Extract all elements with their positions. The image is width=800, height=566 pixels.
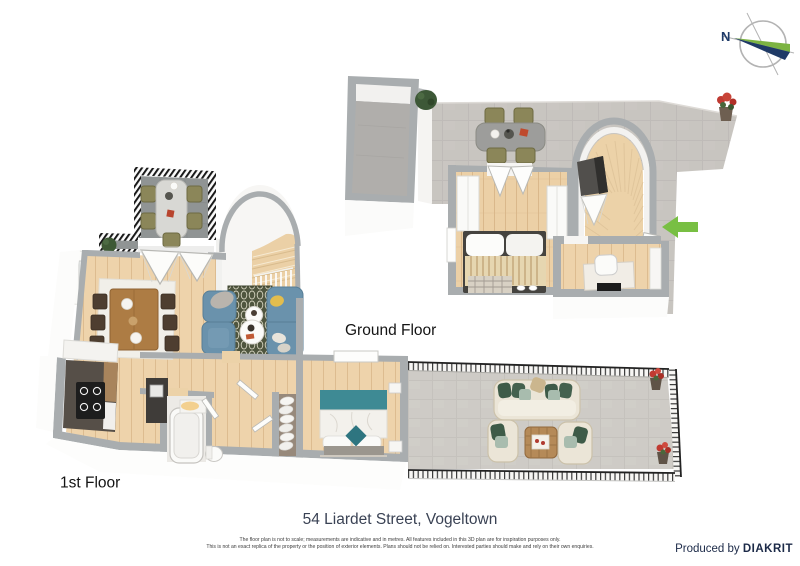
svg-text:54 Liardet Street, Vogeltown: 54 Liardet Street, Vogeltown bbox=[303, 511, 498, 528]
svg-text:Ground Floor: Ground Floor bbox=[345, 322, 436, 339]
svg-text:The floor plan is not to scale: The floor plan is not to scale; measurem… bbox=[240, 537, 561, 543]
svg-text:This is not an exact replica o: This is not an exact replica of the prop… bbox=[206, 544, 593, 550]
svg-text:N: N bbox=[721, 29, 730, 44]
svg-text:1st Floor: 1st Floor bbox=[60, 475, 120, 492]
svg-text:Produced by DIAKRIT: Produced by DIAKRIT bbox=[675, 543, 793, 555]
